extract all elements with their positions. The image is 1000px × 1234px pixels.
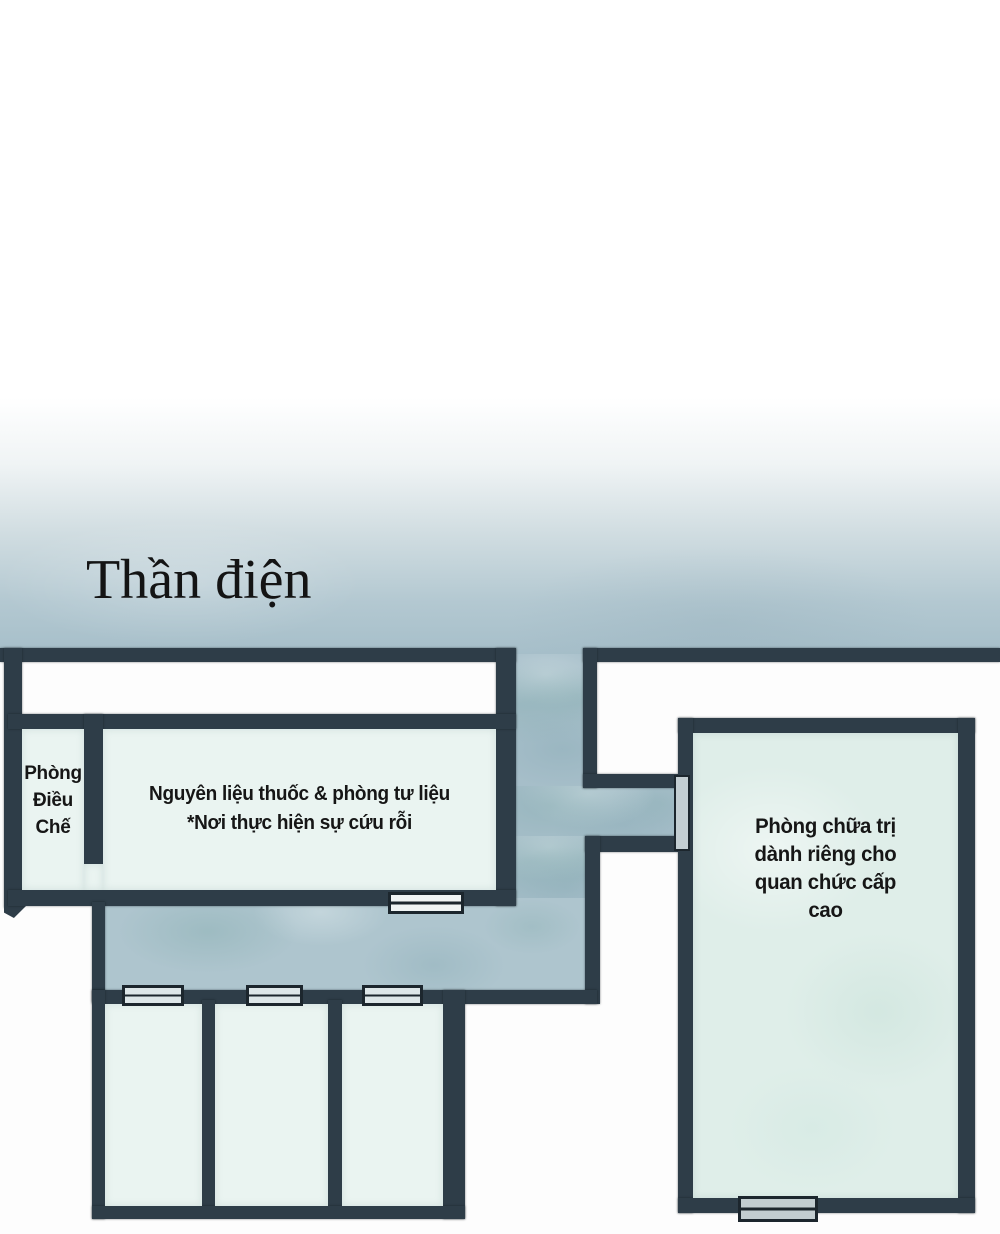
wall-center-vertical — [496, 648, 516, 906]
wall-strip-left — [585, 836, 600, 1004]
wall-treatment-bottom — [678, 1198, 975, 1213]
door-treatment-side — [674, 775, 690, 851]
wall-right-corridor-left — [583, 648, 597, 788]
room-treatment-label: Phòng chữa trị dành riêng cho quan chức … — [697, 813, 954, 925]
door-materials-room — [388, 892, 464, 914]
door-cell-2 — [246, 985, 303, 1006]
wall-top-left — [0, 648, 516, 662]
channel-mid-area — [514, 786, 678, 842]
door-treatment-bottom — [738, 1196, 818, 1222]
channel-upper-area — [514, 654, 585, 790]
wall-cell-divider-1 — [202, 1000, 215, 1208]
room-treatment-floor — [693, 733, 958, 1198]
room-cell-1-floor — [105, 1004, 202, 1206]
room-cell-2-floor — [215, 1004, 328, 1206]
map-title: Thần điện — [86, 548, 486, 612]
wall-right-corridor-bottom — [583, 774, 678, 788]
room-materials-label: Nguyên liệu thuốc & phòng tư liệu *Nơi t… — [113, 780, 486, 838]
wall-treatment-top — [678, 718, 975, 733]
temple-floor-plan: Thần điện Phòng Điều Chế Nguyên liệu thu… — [0, 0, 1000, 1234]
wall-cell-divider-2 — [328, 1000, 342, 1208]
wall-cells-left — [92, 990, 105, 1219]
wall-cells-right — [443, 990, 465, 1219]
room-divider-door-gap — [84, 864, 103, 890]
wall-cells-bottom — [92, 1206, 465, 1219]
wall-treatment-right — [958, 718, 975, 1213]
wall-left-outer-tip — [4, 906, 26, 918]
room-cell-3-floor — [342, 1004, 443, 1206]
courtyard-area — [100, 898, 591, 994]
wall-courtyard-left — [92, 902, 105, 1002]
door-cell-3 — [362, 985, 423, 1006]
wall-top-right — [583, 648, 1000, 662]
room-preparation-label: Phòng Điều Chế — [16, 760, 90, 841]
door-cell-1 — [122, 985, 184, 1006]
